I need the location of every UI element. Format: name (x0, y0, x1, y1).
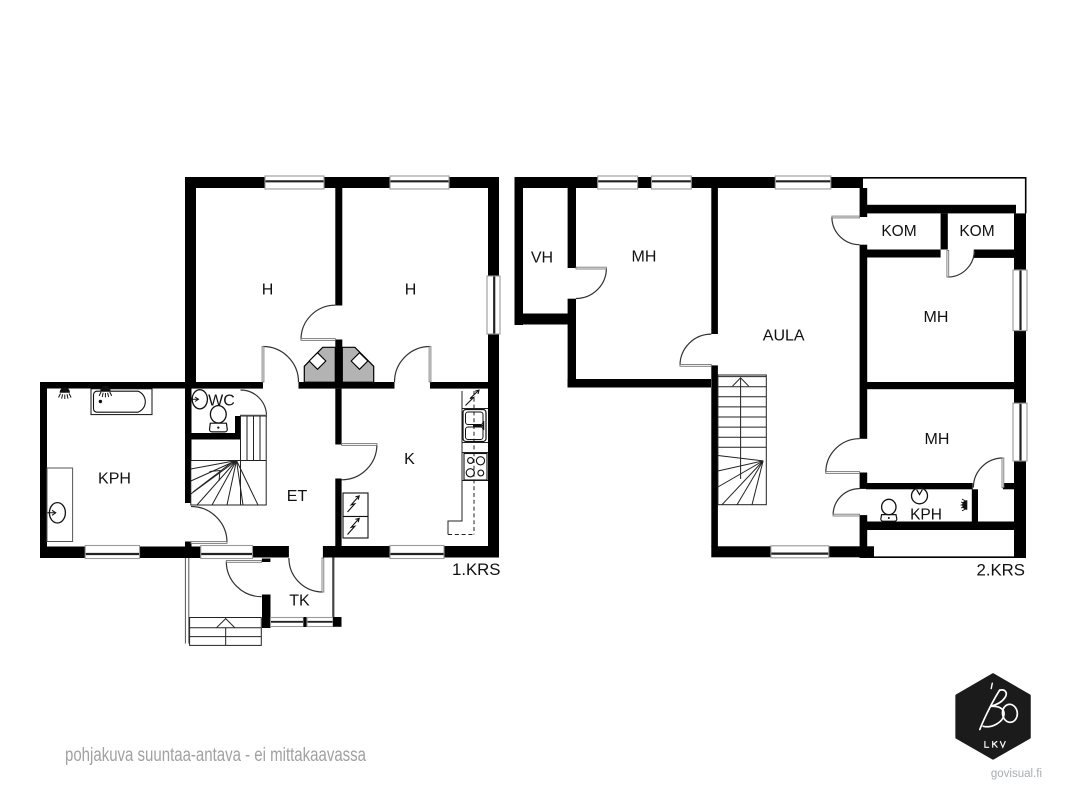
svg-text:MH: MH (925, 431, 950, 448)
svg-text:WC: WC (208, 392, 235, 409)
svg-text:AULA: AULA (763, 328, 805, 345)
svg-text:KPH: KPH (98, 470, 131, 487)
svg-text:pohjakuva suuntaa-antava - ei: pohjakuva suuntaa-antava - ei mittakaava… (65, 745, 366, 766)
svg-text:MH: MH (632, 249, 657, 266)
svg-text:1.KRS: 1.KRS (452, 560, 501, 579)
svg-text:KOM: KOM (959, 223, 994, 240)
svg-text:ET: ET (287, 488, 308, 505)
svg-text:MH: MH (924, 309, 949, 326)
svg-text:K: K (404, 451, 415, 468)
svg-text:TK: TK (289, 593, 310, 610)
svg-text:KOM: KOM (881, 223, 916, 240)
svg-text:H: H (405, 282, 417, 299)
svg-text:H: H (262, 282, 274, 299)
svg-text:KPH: KPH (910, 507, 942, 524)
svg-text:2.KRS: 2.KRS (976, 561, 1025, 580)
svg-text:govisual.fi: govisual.fi (991, 768, 1042, 780)
svg-text:VH: VH (531, 250, 553, 267)
